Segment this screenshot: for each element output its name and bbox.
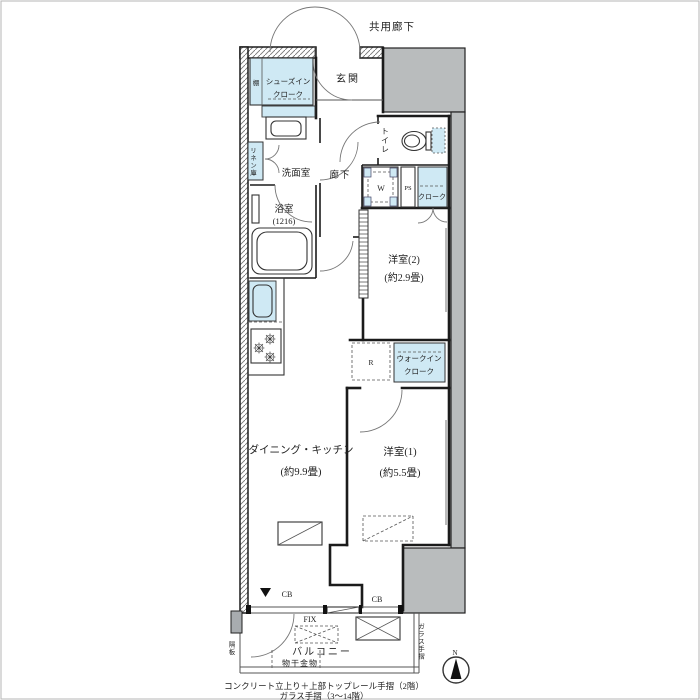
label-bathroom-size: (1216) — [273, 216, 296, 226]
burner-icon — [265, 352, 276, 363]
label-shelf: 棚 — [253, 78, 260, 87]
label-western-room-2-size: (約2.9畳) — [384, 271, 423, 284]
cloak-box — [418, 167, 447, 207]
label-bathroom: 浴室 — [274, 203, 293, 215]
label-hallway: 廊下 — [329, 169, 350, 181]
label-shoe-closet-2: クローク — [273, 90, 303, 99]
label-dining-kitchen-size: (約9.9畳) — [280, 465, 322, 478]
label-walk-in-closet-1: ウォークイン — [397, 354, 442, 363]
gray-mass-bottom — [403, 548, 465, 613]
label-washroom: 洗面室 — [282, 167, 311, 179]
toilet-bowl — [402, 132, 426, 151]
burner-icon — [265, 334, 276, 345]
image-border — [1, 1, 699, 699]
label-toilet: トイレ — [381, 127, 390, 154]
label-walk-in-closet-2: クローク — [404, 367, 434, 376]
label-common-corridor: 共用廊下 — [369, 20, 415, 33]
accordion-door — [359, 210, 368, 298]
label-shoe-closet-1: シューズイン — [266, 76, 311, 86]
label-cloak: クローク — [418, 193, 446, 201]
label-western-room-2: 洋室(2) — [388, 253, 420, 266]
label-cb-right: CB — [372, 595, 383, 604]
gray-mass-top — [383, 48, 465, 112]
label-western-room-1: 洋室(1) — [383, 445, 417, 458]
label-refrigerator: R — [368, 358, 373, 367]
label-note-line1: コンクリート立上り＋上部トップレール手摺（2階） — [224, 681, 424, 691]
partition-panel — [231, 611, 242, 633]
label-dining-kitchen: ダイニング・キッチン — [249, 443, 354, 456]
compass-icon — [443, 657, 469, 683]
label-compass-north: N — [452, 649, 457, 657]
label-note-line2: ガラス手摺（3～14階） — [279, 691, 368, 700]
label-balcony: バルコニー — [292, 646, 352, 658]
toilet-tank — [432, 128, 445, 153]
label-fix: FIX — [304, 615, 317, 624]
label-laundry-hardware: 物干金物 — [282, 658, 318, 668]
label-pipe-space: PS — [404, 185, 412, 192]
label-entrance: 玄関 — [336, 72, 360, 85]
label-cb-left: CB — [282, 590, 293, 599]
floorplan-image: 共用廊下 玄関 シューズイン クローク 棚 トイレ W PS クローク リネン庫… — [0, 0, 700, 700]
burner-icon — [254, 343, 265, 354]
label-washer: W — [377, 184, 385, 193]
left-wall — [240, 47, 248, 613]
label-western-room-1-size: (約5.5畳) — [379, 466, 421, 479]
floorplan-svg: 共用廊下 玄関 シューズイン クローク 棚 トイレ W PS クローク リネン庫… — [0, 0, 700, 700]
top-wall-left — [240, 47, 316, 58]
top-wall-right — [360, 47, 383, 58]
gray-mass-side — [451, 112, 465, 548]
